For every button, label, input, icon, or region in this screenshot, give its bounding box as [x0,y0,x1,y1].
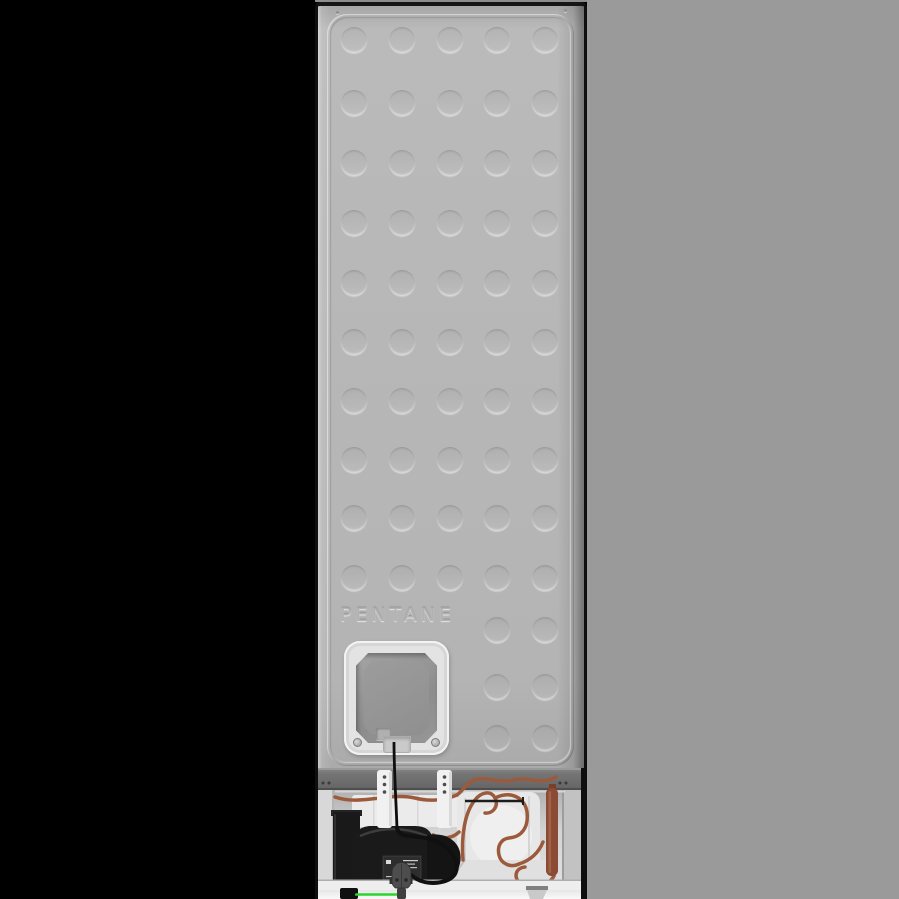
dimple [484,90,510,116]
access-panel [344,641,449,755]
dimple [484,388,510,414]
dimple [484,329,510,355]
dimple [484,674,510,700]
cabinet-edge-left [315,768,318,899]
dimple [389,447,415,473]
dimple [437,90,463,116]
dimple [437,388,463,414]
cabinet-edge-right [581,768,587,899]
dimple [389,90,415,116]
dimple [532,674,558,700]
dimple [389,388,415,414]
rivet-dot [336,11,339,14]
dimple [341,329,367,355]
dimple [532,90,558,116]
dimple [341,150,367,176]
dimple [437,565,463,591]
dimple [437,270,463,296]
dimple [341,90,367,116]
dimple [341,388,367,414]
dimple [389,27,415,53]
rivet-dot [564,9,567,12]
compartment-left-wall [318,790,333,890]
foot-left [340,888,358,899]
dimple [484,27,510,53]
dimple [532,447,558,473]
dimple [341,565,367,591]
dimple [437,210,463,236]
dimple [341,447,367,473]
dimple [532,565,558,591]
dimple [437,447,463,473]
right-wall-edge [562,790,564,890]
dimple [484,150,510,176]
dimple [484,617,510,643]
earth-wire-green [355,893,398,896]
dimple [484,505,510,531]
dimple [532,27,558,53]
dimple [437,505,463,531]
dimple [484,447,510,473]
dimple [389,505,415,531]
dimple [484,210,510,236]
dimple [389,150,415,176]
dimple [532,388,558,414]
product-photo-scene: PENTANE [0,0,899,899]
mounting-bracket-left [377,770,392,828]
dimple [532,505,558,531]
dimple [389,329,415,355]
dimple [532,150,558,176]
dimple [389,565,415,591]
dimple [532,617,558,643]
back-panel: PENTANE [315,2,587,770]
dimple [532,210,558,236]
dimple [437,329,463,355]
dimple [341,270,367,296]
dimple [341,210,367,236]
fridge-rear: PENTANE [315,0,587,899]
drier-filter [546,784,558,876]
dimple [532,270,558,296]
dimple [484,270,510,296]
compartment-right-wall [563,790,581,890]
dimple [437,150,463,176]
dimple [532,329,558,355]
mounting-bracket-right [437,770,452,828]
pentane-embossed-text: PENTANE [340,604,455,626]
dimple [389,270,415,296]
access-panel-recess [356,653,437,743]
dimple [484,565,510,591]
dimple [341,27,367,53]
dimple [389,210,415,236]
dimple [341,505,367,531]
background-right [587,0,899,899]
dimple [437,27,463,53]
compressor-compartment [315,740,587,899]
